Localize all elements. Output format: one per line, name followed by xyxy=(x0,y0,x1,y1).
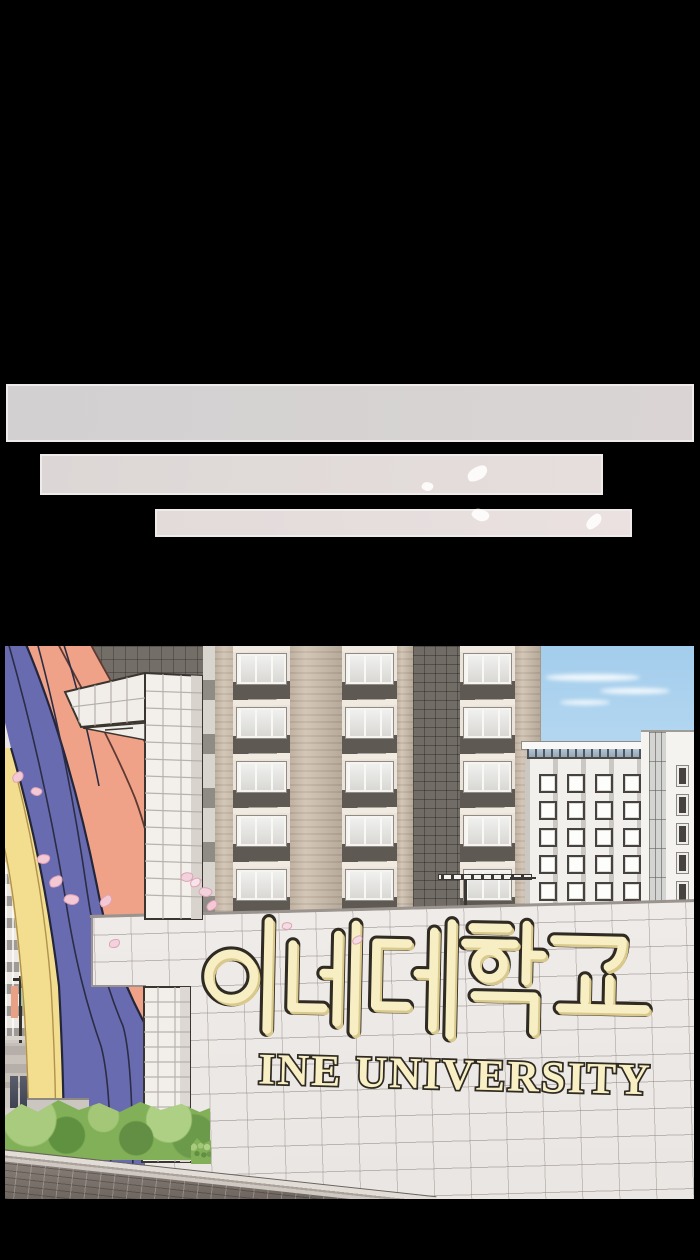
tower-window xyxy=(464,654,511,684)
midrise-window xyxy=(595,774,613,793)
white-building xyxy=(641,730,694,908)
midrise-window xyxy=(567,855,585,874)
tower-window xyxy=(237,816,286,846)
narration-bar-2 xyxy=(40,454,603,495)
tower-window xyxy=(346,816,393,846)
panel-illustration: 이네대학교 xyxy=(5,646,694,1199)
midrise-window xyxy=(595,828,613,847)
midrise-window xyxy=(539,801,557,820)
window-slot xyxy=(677,795,688,815)
midrise-window xyxy=(539,882,557,901)
midrise-window xyxy=(539,774,557,793)
midrise-window xyxy=(567,801,585,820)
webtoon-page: 이네대학교 xyxy=(0,0,700,1260)
tower-window xyxy=(464,762,511,792)
petal-icon xyxy=(465,464,489,483)
midrise-window xyxy=(539,828,557,847)
petal-icon xyxy=(583,512,604,531)
midrise-window xyxy=(567,774,585,793)
tower-window xyxy=(237,762,286,792)
window-slot xyxy=(677,853,688,873)
tower-window xyxy=(346,708,393,738)
midrise-window xyxy=(595,855,613,874)
midrise-window xyxy=(567,882,585,901)
tower-window xyxy=(346,762,393,792)
midrise-window xyxy=(567,828,585,847)
midrise-window xyxy=(623,855,641,874)
midrise-window xyxy=(595,882,613,901)
tower-window xyxy=(237,708,286,738)
glass-strip xyxy=(649,732,666,908)
petal-icon xyxy=(421,480,435,493)
sign-korean: 이네대학교 xyxy=(204,913,668,1045)
tower-window xyxy=(464,816,511,846)
narration-bar-1 xyxy=(6,384,694,442)
tower-window xyxy=(346,870,393,900)
tower-window xyxy=(346,654,393,684)
midrise-railing xyxy=(527,749,645,759)
tower-window xyxy=(237,870,286,900)
midrise-window xyxy=(623,882,641,901)
midrise-window xyxy=(539,855,557,874)
petal-icon xyxy=(470,506,491,525)
window-slot xyxy=(677,766,688,786)
tower-window xyxy=(464,708,511,738)
midrise-window xyxy=(623,801,641,820)
midrise-window xyxy=(623,828,641,847)
tower-window xyxy=(237,654,286,684)
window-slot xyxy=(677,824,688,844)
narration-bar-3 xyxy=(155,509,632,537)
midrise-window xyxy=(595,801,613,820)
svg-text:INE UNIVERSITY: INE UNIVERSITY xyxy=(258,1045,653,1105)
midrise-window xyxy=(623,774,641,793)
midrise-building xyxy=(525,759,651,909)
